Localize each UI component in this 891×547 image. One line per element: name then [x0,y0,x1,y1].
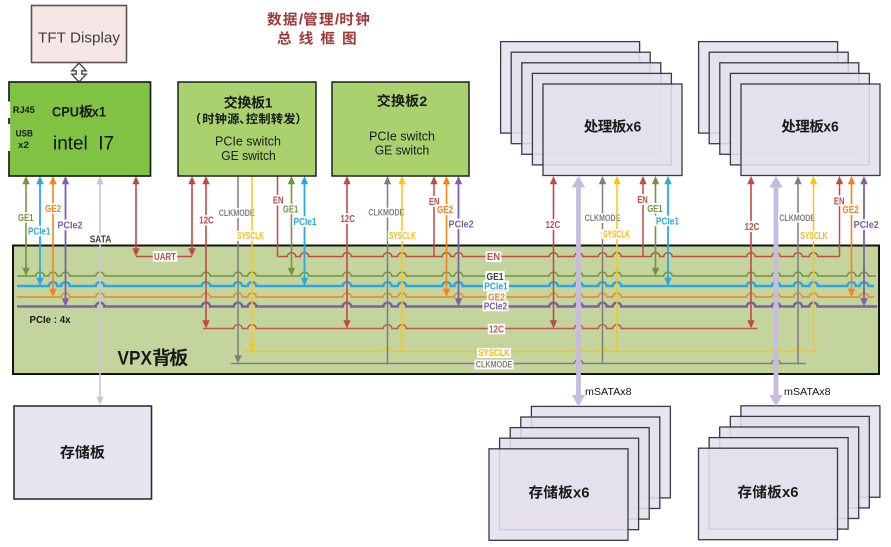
svg-text:CLKMODE: CLKMODE [368,208,404,218]
svg-text:GE switch: GE switch [375,143,430,158]
svg-text:CLKMODE: CLKMODE [779,213,815,223]
svg-text:/: / [335,13,339,29]
svg-text:GE1: GE1 [283,203,299,215]
svg-text:x6: x6 [573,486,590,502]
svg-text:SYSCLK: SYSCLK [801,231,828,242]
svg-text:PCIe switch: PCIe switch [369,129,435,144]
svg-text:SATA: SATA [90,234,112,246]
svg-text:12C: 12C [546,219,561,231]
svg-text:TFT Display: TFT Display [38,31,121,47]
svg-text:PCIe1: PCIe1 [656,215,679,227]
svg-text:SYSCLK: SYSCLK [389,231,416,242]
svg-text:1: 1 [265,95,273,111]
svg-text:PCIe2: PCIe2 [854,219,879,231]
svg-text:SYSCLK: SYSCLK [478,348,510,359]
svg-text:/: / [299,13,303,29]
svg-text:12C: 12C [199,215,214,227]
svg-text:USB: USB [16,129,34,139]
svg-text:PCIe2: PCIe2 [57,219,82,231]
svg-text:12C: 12C [745,221,760,233]
svg-text:x6: x6 [626,120,642,136]
svg-text:RJ45: RJ45 [13,105,35,115]
svg-text:CLKMODE: CLKMODE [219,208,255,218]
svg-text:PCIe : 4x: PCIe : 4x [30,314,71,326]
svg-text:SYSCLK: SYSCLK [603,229,630,240]
svg-text:GE2: GE2 [843,204,859,216]
svg-text:SYSCLK: SYSCLK [237,231,264,242]
svg-text:2: 2 [419,93,427,109]
svg-text:VPX: VPX [118,349,153,370]
svg-text:GE1: GE1 [18,212,34,224]
svg-text:mSATAx8: mSATAx8 [585,386,632,398]
svg-text:12C: 12C [340,213,355,225]
svg-text:PCIe switch: PCIe switch [215,134,281,149]
svg-text:CPU: CPU [52,104,79,120]
svg-text:12C: 12C [489,324,504,336]
svg-text:GE switch: GE switch [221,148,276,163]
svg-text:PCIe1: PCIe1 [28,226,50,238]
svg-text:PCIe1: PCIe1 [293,216,316,228]
svg-text:CLKMODE: CLKMODE [476,360,513,370]
svg-text:PCIe2: PCIe2 [484,300,508,312]
svg-text:EN: EN [487,251,500,263]
svg-text:x6: x6 [782,485,799,501]
svg-text:x2: x2 [18,140,29,150]
svg-text:x1: x1 [92,104,106,120]
svg-text:GE2: GE2 [45,203,61,215]
svg-text:CLKMODE: CLKMODE [585,213,621,223]
svg-text:mSATAx8: mSATAx8 [784,386,831,398]
svg-text:x6: x6 [823,120,839,136]
svg-text:GE1: GE1 [647,203,663,215]
svg-text:UART: UART [154,251,176,263]
svg-text:PCIe2: PCIe2 [449,218,474,230]
svg-text:GE2: GE2 [437,204,453,216]
svg-text:intel I7: intel I7 [53,133,114,155]
